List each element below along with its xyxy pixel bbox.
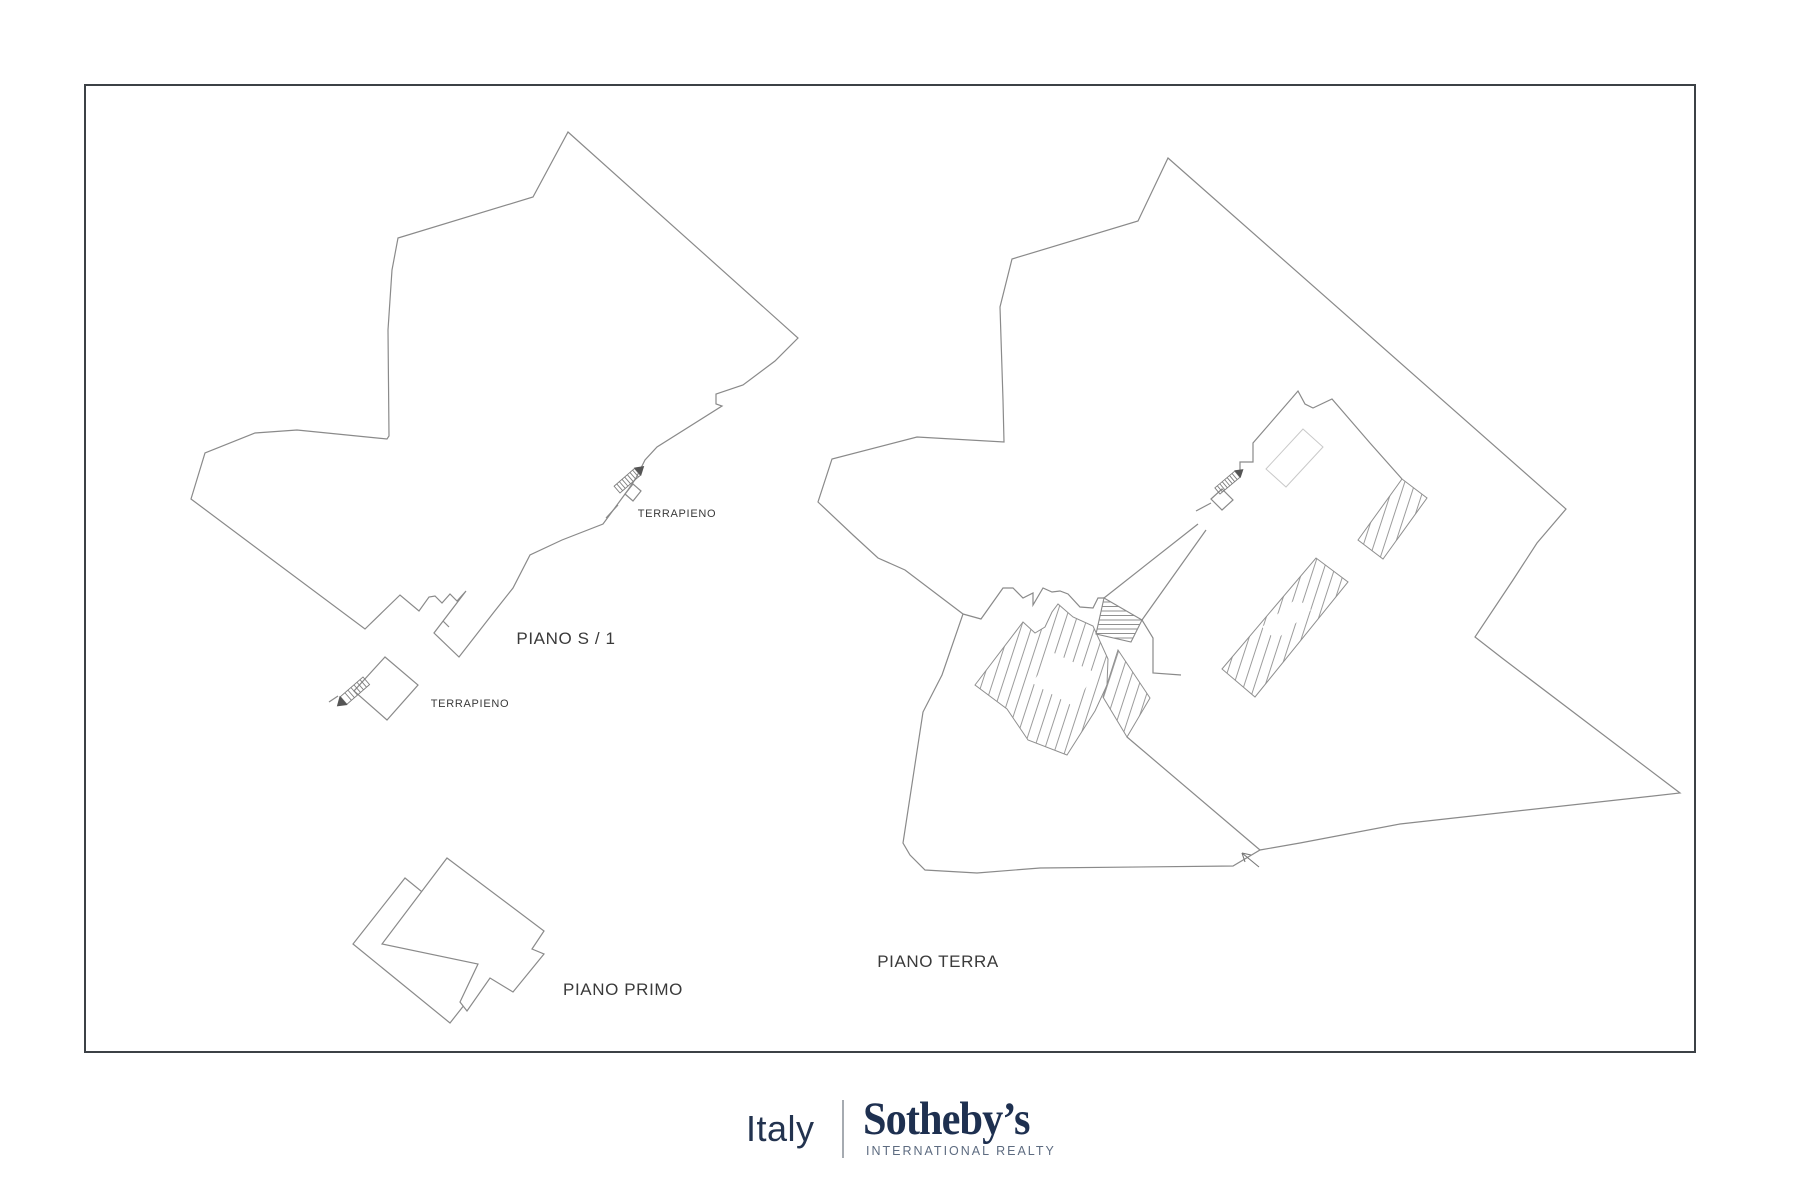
plan-s1-outline <box>191 132 798 657</box>
label-piano-primo: PIANO PRIMO <box>563 980 683 1000</box>
plan-terra-step-wall <box>1240 398 1292 473</box>
landing-leader <box>1196 503 1211 511</box>
courtyard-wall <box>1142 620 1181 675</box>
label-piano-terra: PIANO TERRA <box>877 952 999 972</box>
plan-terra-buildings <box>975 429 1427 755</box>
plan-s1-stair-leader <box>329 696 338 702</box>
plan-s1 <box>191 132 798 720</box>
floorplan-page: TERRAPIENO TERRAPIENO PIANO S / 1 PIANO … <box>0 0 1800 1200</box>
label-piano-s1: PIANO S / 1 <box>516 629 615 649</box>
light-rectangle <box>1266 429 1323 487</box>
label-terrapieno-lower: TERRAPIENO <box>431 698 510 710</box>
plan-s1-stairs-lower <box>333 676 370 711</box>
plan-s1-lower-building <box>354 657 418 720</box>
wing-hatched <box>1103 650 1150 737</box>
plan-terra-outline <box>818 158 1680 873</box>
plan-terra-central-stairs <box>1090 598 1150 642</box>
plan-s1-wall-tick <box>606 505 618 518</box>
entrance-arrow <box>1242 853 1259 867</box>
plan-terra-notch-wall <box>1292 391 1402 479</box>
small-terrace-hatched <box>1358 479 1427 559</box>
plan-primo <box>353 858 544 1023</box>
plan-terra <box>818 158 1680 873</box>
floorplan-drawing <box>0 0 1800 1200</box>
terrace-wall <box>1127 737 1260 850</box>
sheet-border <box>85 85 1695 1052</box>
plan-s1-stairs-upper <box>613 462 647 494</box>
plan-terra-zigzag-wall <box>963 588 1104 619</box>
label-terrapieno-upper: TERRAPIENO <box>638 508 717 520</box>
plan-terra-stairs-upper <box>1214 465 1246 495</box>
plan-s1-building-tick <box>443 621 449 627</box>
